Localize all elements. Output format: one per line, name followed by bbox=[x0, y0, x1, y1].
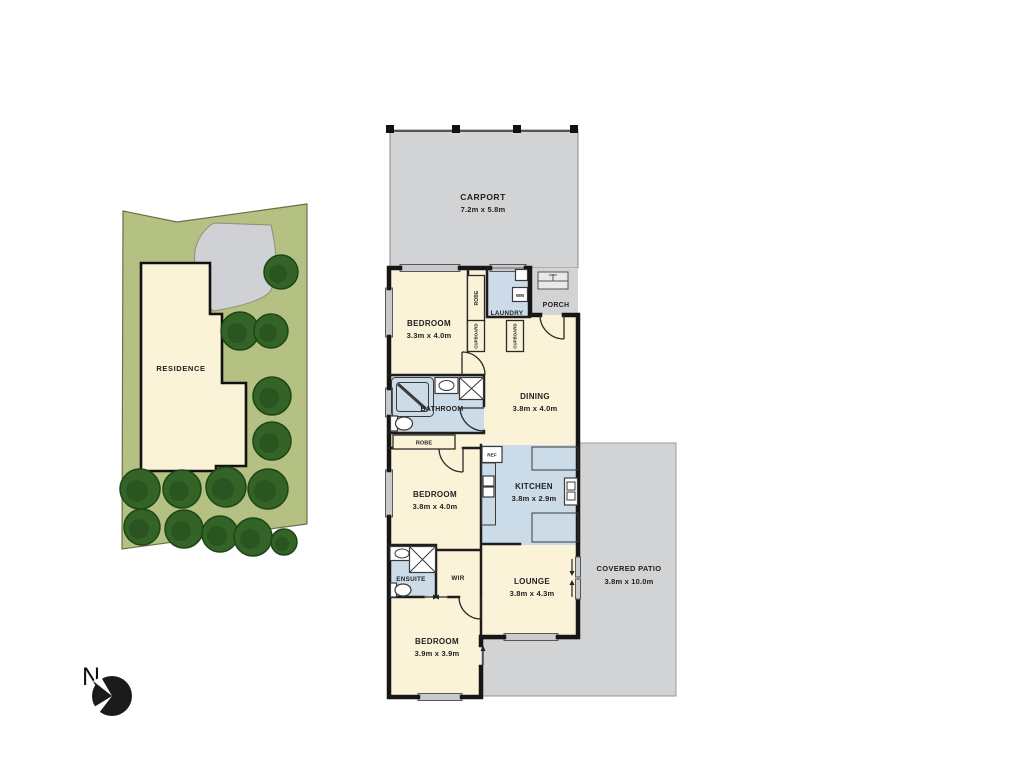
toilet-icon bbox=[391, 583, 412, 597]
sink-icon bbox=[483, 476, 494, 497]
patio-dims: 3.8m x 10.0m bbox=[604, 577, 653, 586]
tree bbox=[206, 467, 246, 507]
bedroom2-label: BEDROOM bbox=[413, 490, 457, 499]
laundry-label: LAUNDRY bbox=[491, 310, 524, 317]
residence-label: RESIDENCE bbox=[156, 364, 205, 373]
bedroom1-dims: 3.3m x 4.0m bbox=[407, 331, 452, 340]
carport-label: CARPORT bbox=[460, 192, 506, 202]
ref-label: REF bbox=[487, 453, 497, 458]
tree bbox=[202, 516, 238, 552]
ensuite-label: ENSUITE bbox=[396, 576, 425, 583]
kitchen-label: KITCHEN bbox=[515, 482, 553, 491]
tree bbox=[124, 509, 160, 545]
porch-tub-icon bbox=[538, 272, 568, 289]
tree bbox=[234, 518, 272, 556]
patio-label: COVERED PATIO bbox=[597, 564, 662, 573]
cupboard-right-label: CUPBOARD bbox=[513, 323, 518, 348]
carport-dims: 7.2m x 5.8m bbox=[461, 205, 506, 214]
bedroom3-label: BEDROOM bbox=[415, 637, 459, 646]
bedroom1-label: BEDROOM bbox=[407, 319, 451, 328]
floorplan-image: RESIDENCE N bbox=[0, 0, 1024, 768]
tree bbox=[271, 529, 297, 555]
wm-label: WM bbox=[516, 293, 524, 298]
tree bbox=[165, 510, 203, 548]
dining-dims: 3.8m x 4.0m bbox=[513, 404, 558, 413]
north-compass: N bbox=[82, 663, 132, 716]
tree bbox=[248, 469, 288, 509]
robe-vertical-label: ROBE bbox=[474, 290, 480, 305]
toilet-icon bbox=[391, 416, 413, 431]
tree bbox=[254, 314, 288, 348]
bathroom-label: BATHROOM bbox=[420, 406, 463, 413]
laundry-cupboard-box bbox=[516, 270, 528, 281]
kitchen-dims: 3.8m x 2.9m bbox=[512, 494, 557, 503]
lounge-label: LOUNGE bbox=[514, 577, 550, 586]
wir-label: WIR bbox=[451, 575, 464, 582]
floorplan-page: RESIDENCE N bbox=[0, 0, 1024, 768]
floor-plan: CARPORT 7.2m x 5.8m PORCH LAUNDRY BEDROO… bbox=[386, 125, 677, 701]
compass-icon bbox=[92, 676, 132, 716]
cupboard-left-label: CUPBOARD bbox=[474, 323, 479, 348]
tree bbox=[120, 469, 160, 509]
tree bbox=[253, 377, 291, 415]
dining-label: DINING bbox=[520, 392, 550, 401]
robe-horizontal-label: ROBE bbox=[416, 441, 433, 447]
lounge-dims: 3.8m x 4.3m bbox=[510, 589, 555, 598]
bedroom2-dims: 3.8m x 4.0m bbox=[413, 502, 458, 511]
bedroom3-dims: 3.9m x 3.9m bbox=[415, 649, 460, 658]
site-plan: RESIDENCE bbox=[120, 204, 307, 556]
porch-label: PORCH bbox=[543, 302, 570, 309]
vanity-icon bbox=[435, 378, 458, 394]
tree bbox=[264, 255, 298, 289]
tree bbox=[163, 470, 201, 508]
tree bbox=[253, 422, 291, 460]
stove-icon bbox=[565, 478, 578, 505]
